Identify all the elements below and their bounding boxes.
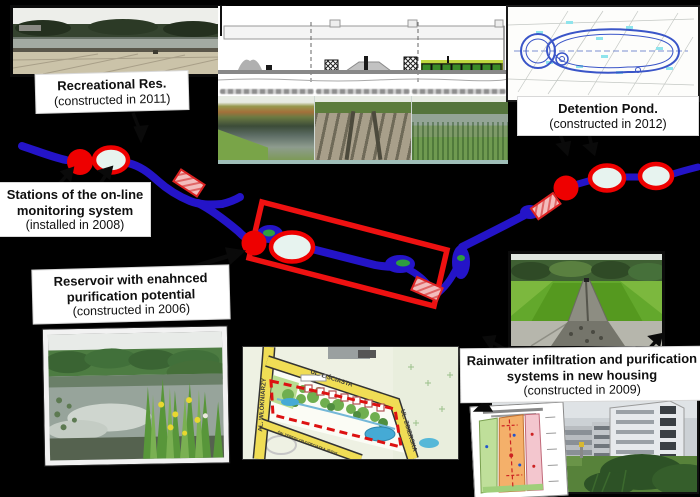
photo-sedimentation-pond [218,96,314,160]
callout-rainwater-systems: Rainwater infiltration and purification … [461,347,700,403]
station-circle-2 [242,231,267,256]
station-markers [67,148,672,262]
stations-year: (installed in 2008) [5,218,145,233]
blueprint-art [508,7,694,96]
cross-section-art [218,6,508,86]
rainwater-year: (constructed in 2009) [466,382,698,399]
diagram-canvas: Recreational Res. (constructed in 2011) [0,0,700,497]
arrow-detention-2 [586,134,596,153]
gravel-rows [315,113,411,160]
gauge-marker-left [173,170,204,197]
photo-strip [218,86,508,164]
strip-captions-illegible [218,86,508,96]
station-ellipse-4 [640,164,672,188]
gauge-markers [173,170,560,302]
arrow-stations-1 [60,169,72,183]
river-ponds [257,205,540,279]
caption-blur-2 [316,89,410,94]
station-ellipse-3 [590,166,624,191]
photo-infiltration-channel [508,251,665,349]
callout-monitoring-stations: Stations of the on-line monitoring syste… [0,183,150,236]
photo-gabion-channels [315,96,411,160]
callout-recreational-reservoir: Recreational Res. (constructed in 2011) [36,71,189,112]
photo-recreational-reservoir-art [13,8,223,74]
strip-border [218,160,508,164]
map-housing-area: AL. WŁÓKNIARZY UL. LIŚCIASTA UL. ZGIERSK… [243,347,458,459]
map-art: AL. WŁÓKNIARZY UL. LIŚCIASTA UL. ZGIERSK… [243,347,458,459]
reed-texture [412,122,508,160]
arrow-detention-1 [559,134,569,153]
siteplan-art [471,403,566,497]
gauge-marker-right [531,193,561,219]
photo-recreational-reservoir [10,5,226,77]
siteplan-housing [470,402,569,497]
station-circle-3 [554,176,579,201]
arrow-recreational [133,113,146,139]
detention-year: (constructed in 2012) [523,117,693,132]
photo-channel-art [511,254,662,346]
caption-blur-3 [412,89,506,94]
station-ellipse-1 [94,148,128,173]
arrow-stations-2 [100,168,111,184]
caption-blur-1 [220,89,314,94]
station-circle-1 [67,149,93,175]
callout-purification-reservoir: Reservoir with enahnced purification pot… [32,265,229,323]
detention-title: Detention Pond. [523,101,693,117]
stations-title-1: Stations of the on-line [5,187,145,203]
cross-section-diagram [218,6,508,86]
callout-detention-pond: Detention Pond. (constructed in 2012) [518,97,698,135]
pond-bank [218,123,268,160]
blueprint-detention-pond [506,5,700,102]
photo-lake-art [48,331,224,460]
recreational-year: (constructed in 2011) [41,91,183,110]
gauge-marker-center [411,277,442,301]
highlight-rectangle [249,202,447,306]
station-ellipse-2 [271,233,313,262]
stations-title-2: monitoring system [5,203,145,219]
photo-wetland-reeds [412,96,508,160]
river-green-patches [263,230,465,267]
photo-lake-reservoir [43,326,229,465]
rainwater-title-1: Rainwater infiltration and purification [466,351,698,369]
